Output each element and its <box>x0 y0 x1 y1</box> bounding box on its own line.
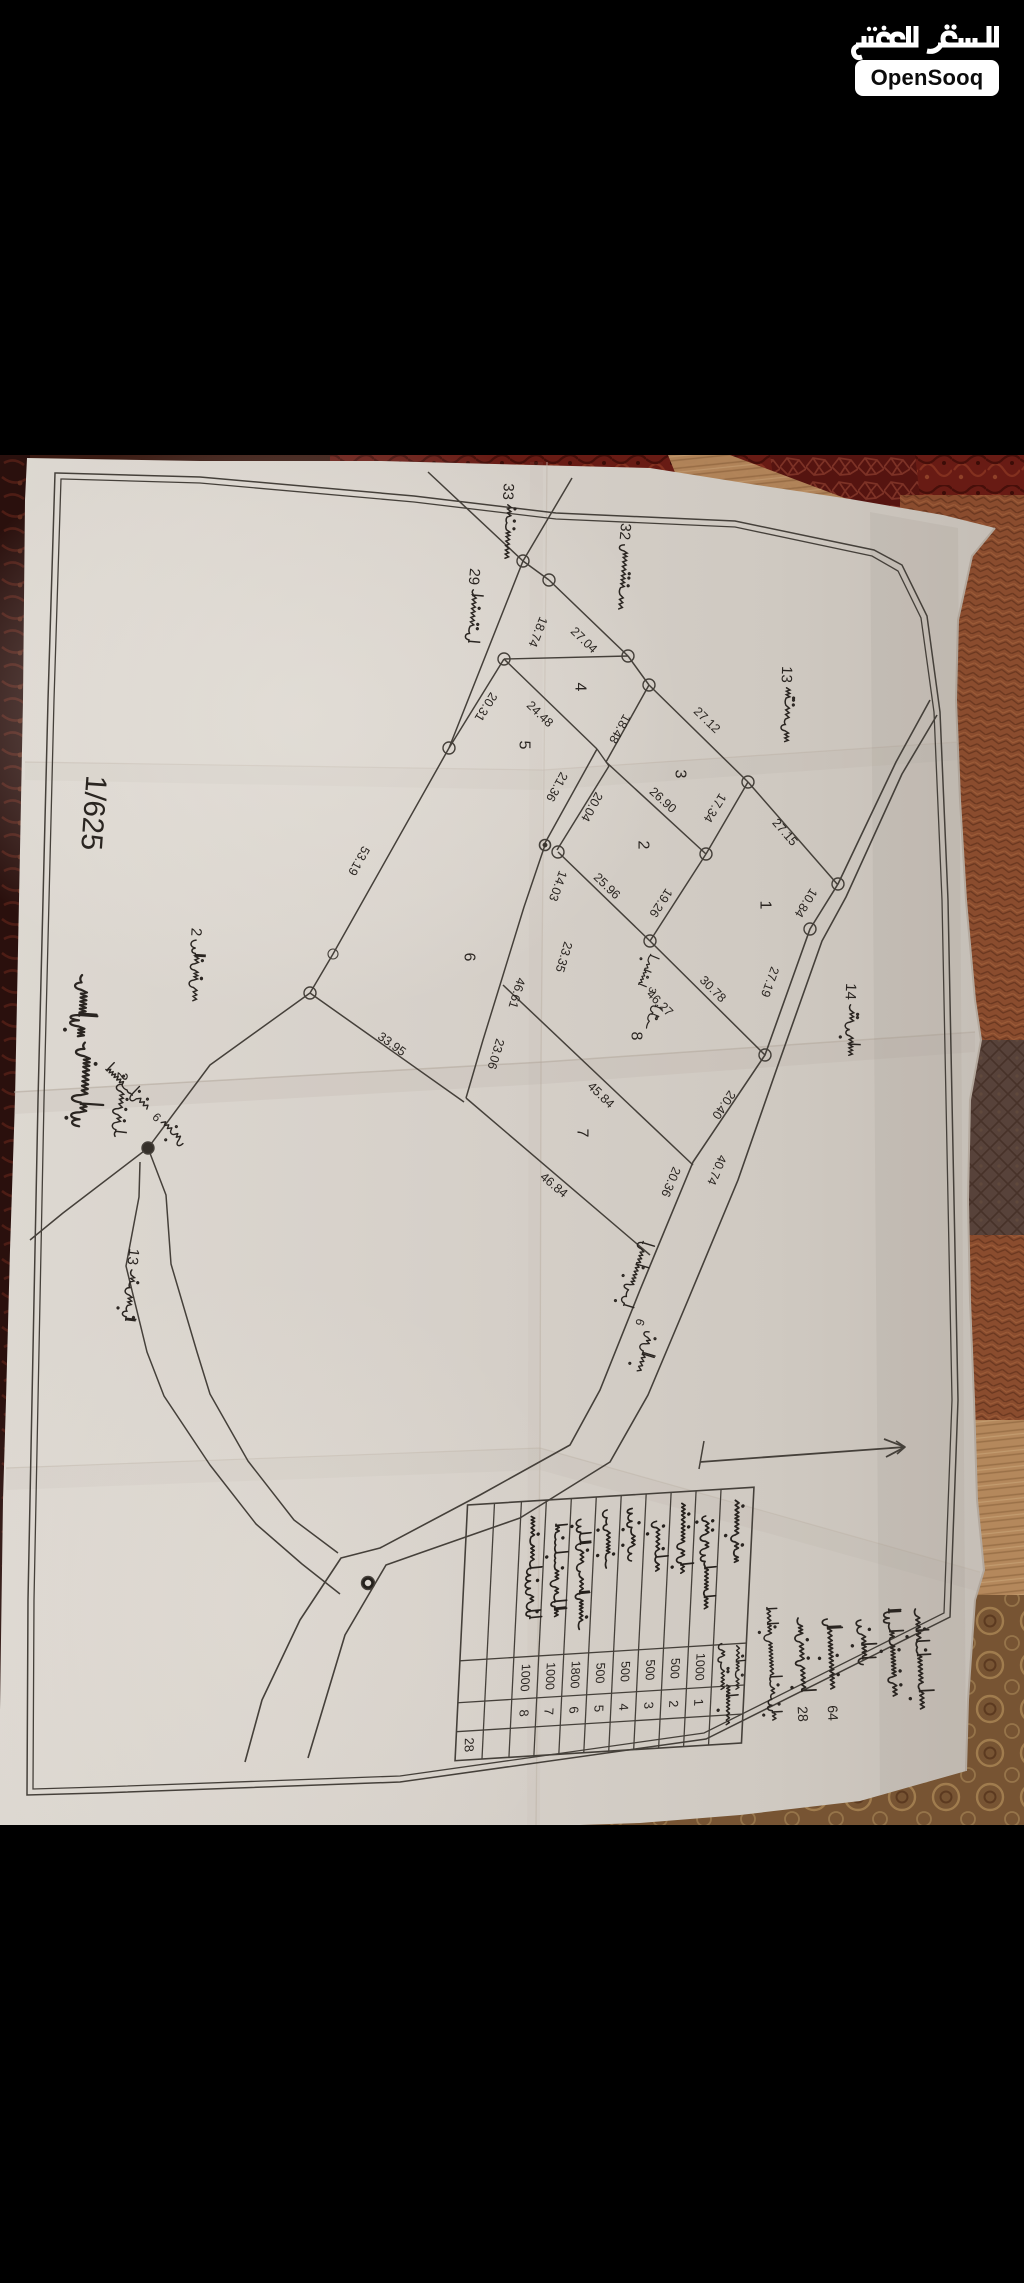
svg-text:7: 7 <box>574 1129 591 1138</box>
svg-text:6: 6 <box>566 1706 581 1714</box>
svg-text:29: 29 <box>465 568 483 586</box>
svg-text:4: 4 <box>616 1703 631 1711</box>
svg-text:3: 3 <box>641 1701 656 1709</box>
svg-text:33: 33 <box>499 483 517 501</box>
svg-text:500: 500 <box>643 1659 658 1681</box>
svg-text:500: 500 <box>618 1661 633 1683</box>
svg-text:7: 7 <box>541 1707 556 1715</box>
svg-text:2: 2 <box>666 1700 681 1708</box>
svg-text:8: 8 <box>628 1032 645 1041</box>
svg-text:3: 3 <box>672 770 689 779</box>
svg-text:13: 13 <box>778 666 796 683</box>
svg-text:14: 14 <box>842 983 860 1000</box>
svg-text:13: 13 <box>123 1247 142 1266</box>
svg-text:64: 64 <box>825 1705 842 1722</box>
svg-text:6: 6 <box>461 953 478 962</box>
svg-text:1000: 1000 <box>518 1663 533 1692</box>
svg-text:28: 28 <box>462 1737 477 1753</box>
svg-text:1: 1 <box>757 901 774 910</box>
svg-text:4: 4 <box>572 683 589 692</box>
svg-text:1: 1 <box>691 1698 706 1706</box>
svg-text:2: 2 <box>635 841 652 850</box>
svg-text:500: 500 <box>667 1658 682 1680</box>
svg-text:1/625: 1/625 <box>74 774 112 851</box>
svg-text:8: 8 <box>516 1709 531 1717</box>
svg-text:1000: 1000 <box>543 1662 558 1691</box>
svg-text:500: 500 <box>593 1662 608 1684</box>
svg-text:5: 5 <box>516 741 533 750</box>
svg-text:1800: 1800 <box>568 1660 583 1689</box>
svg-text:2: 2 <box>187 927 204 936</box>
svg-text:5: 5 <box>591 1704 606 1712</box>
svg-text:32: 32 <box>616 523 634 541</box>
svg-text:1000: 1000 <box>692 1653 707 1682</box>
svg-text:28: 28 <box>795 1706 812 1723</box>
